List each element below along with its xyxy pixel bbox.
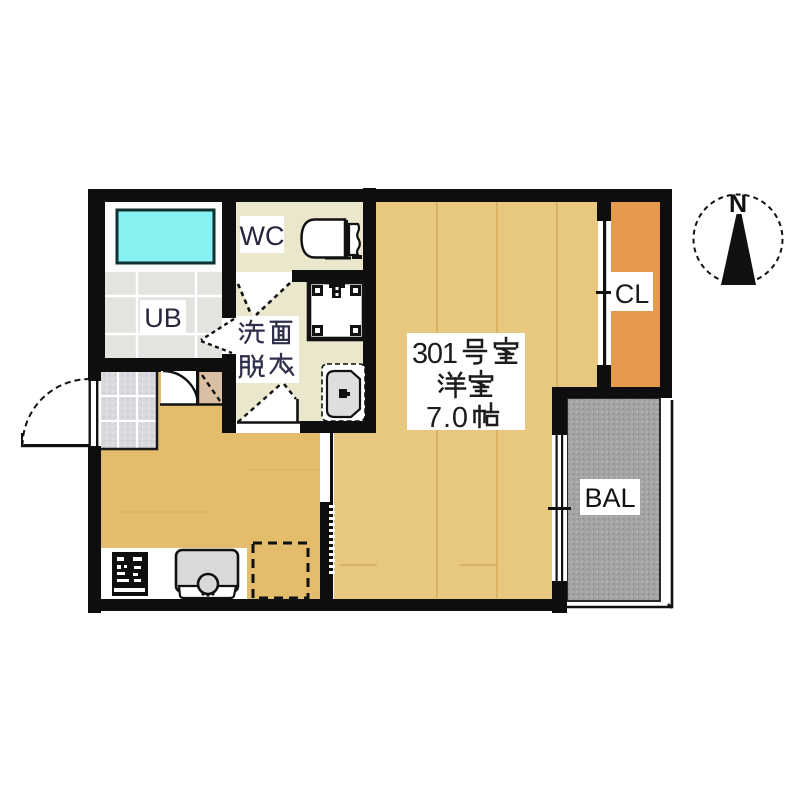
svg-text:UB: UB [144,303,182,333]
svg-text:N: N [729,190,747,218]
svg-text:CL: CL [615,279,650,309]
svg-text:BAL: BAL [584,483,635,513]
svg-text:WC: WC [240,221,285,251]
svg-text:301: 301 [412,338,458,370]
svg-text:7.0: 7.0 [426,402,468,434]
